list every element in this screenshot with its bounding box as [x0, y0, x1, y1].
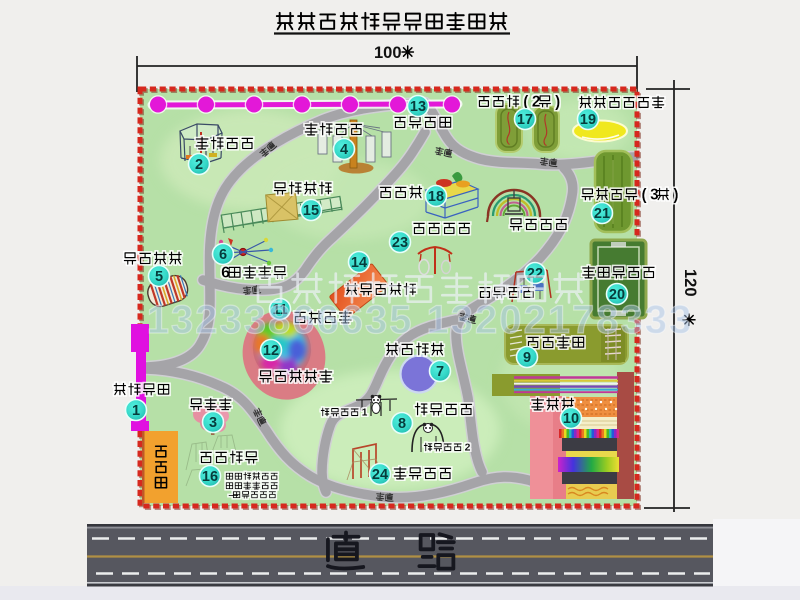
svg-text:6: 6	[219, 247, 227, 263]
svg-text:5: 5	[155, 269, 163, 285]
svg-text:13233866635 13202178333: 13233866635 13202178333	[147, 298, 694, 342]
svg-text:): )	[555, 93, 560, 110]
svg-text:4: 4	[340, 142, 348, 158]
svg-text:8: 8	[398, 416, 406, 432]
svg-text:23: 23	[392, 235, 408, 251]
svg-text:14: 14	[351, 255, 367, 271]
svg-text:21: 21	[594, 206, 610, 222]
svg-text:3: 3	[209, 415, 217, 431]
svg-text:(: (	[641, 186, 647, 203]
svg-text:18: 18	[428, 189, 444, 205]
svg-text:13: 13	[410, 99, 426, 115]
svg-text:9: 9	[523, 350, 531, 366]
svg-text:2: 2	[532, 93, 541, 110]
svg-text:15: 15	[303, 203, 319, 219]
svg-text:1: 1	[132, 403, 140, 419]
svg-text:24: 24	[372, 467, 388, 483]
svg-text:17: 17	[517, 112, 533, 128]
svg-text:10: 10	[563, 411, 579, 427]
svg-text:100: 100	[374, 44, 402, 62]
svg-text:2: 2	[195, 157, 203, 173]
svg-text:22: 22	[527, 266, 543, 282]
svg-text:2: 2	[465, 442, 471, 454]
svg-text:): )	[673, 186, 678, 203]
svg-text:3: 3	[650, 186, 659, 203]
svg-text:16: 16	[202, 469, 218, 485]
svg-text:1: 1	[362, 407, 368, 419]
svg-text:7: 7	[436, 364, 444, 380]
svg-text:120: 120	[681, 269, 699, 297]
svg-text:19: 19	[580, 112, 596, 128]
svg-text:12: 12	[263, 343, 279, 359]
